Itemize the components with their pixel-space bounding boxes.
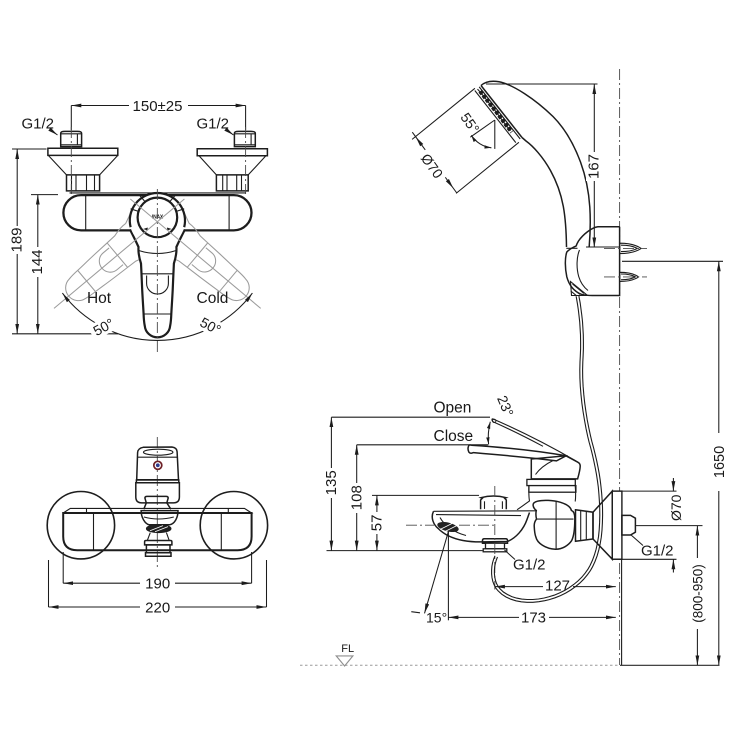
svg-text:G1/2: G1/2 bbox=[22, 116, 55, 133]
svg-text:G1/2: G1/2 bbox=[197, 116, 230, 133]
svg-text:57: 57 bbox=[368, 515, 385, 532]
svg-text:1650: 1650 bbox=[712, 446, 728, 478]
svg-text:Hot: Hot bbox=[87, 290, 112, 307]
svg-text:220: 220 bbox=[145, 599, 170, 616]
svg-text:(800-950): (800-950) bbox=[690, 564, 705, 623]
svg-text:FL: FL bbox=[341, 643, 354, 655]
svg-text:108: 108 bbox=[349, 485, 366, 510]
svg-text:135: 135 bbox=[323, 470, 340, 495]
svg-text:Open: Open bbox=[434, 400, 472, 417]
svg-text:G1/2: G1/2 bbox=[641, 543, 674, 560]
svg-text:G1/2: G1/2 bbox=[513, 557, 546, 574]
svg-text:Cold: Cold bbox=[197, 290, 229, 307]
svg-text:Close: Close bbox=[434, 428, 474, 445]
svg-text:Ø70: Ø70 bbox=[668, 494, 684, 521]
svg-text:173: 173 bbox=[521, 609, 546, 626]
svg-text:167: 167 bbox=[586, 154, 603, 179]
svg-text:190: 190 bbox=[145, 576, 170, 593]
svg-text:189: 189 bbox=[9, 227, 26, 252]
svg-text:15°: 15° bbox=[426, 610, 447, 626]
svg-text:144: 144 bbox=[29, 249, 46, 274]
svg-text:150±25: 150±25 bbox=[133, 98, 183, 115]
